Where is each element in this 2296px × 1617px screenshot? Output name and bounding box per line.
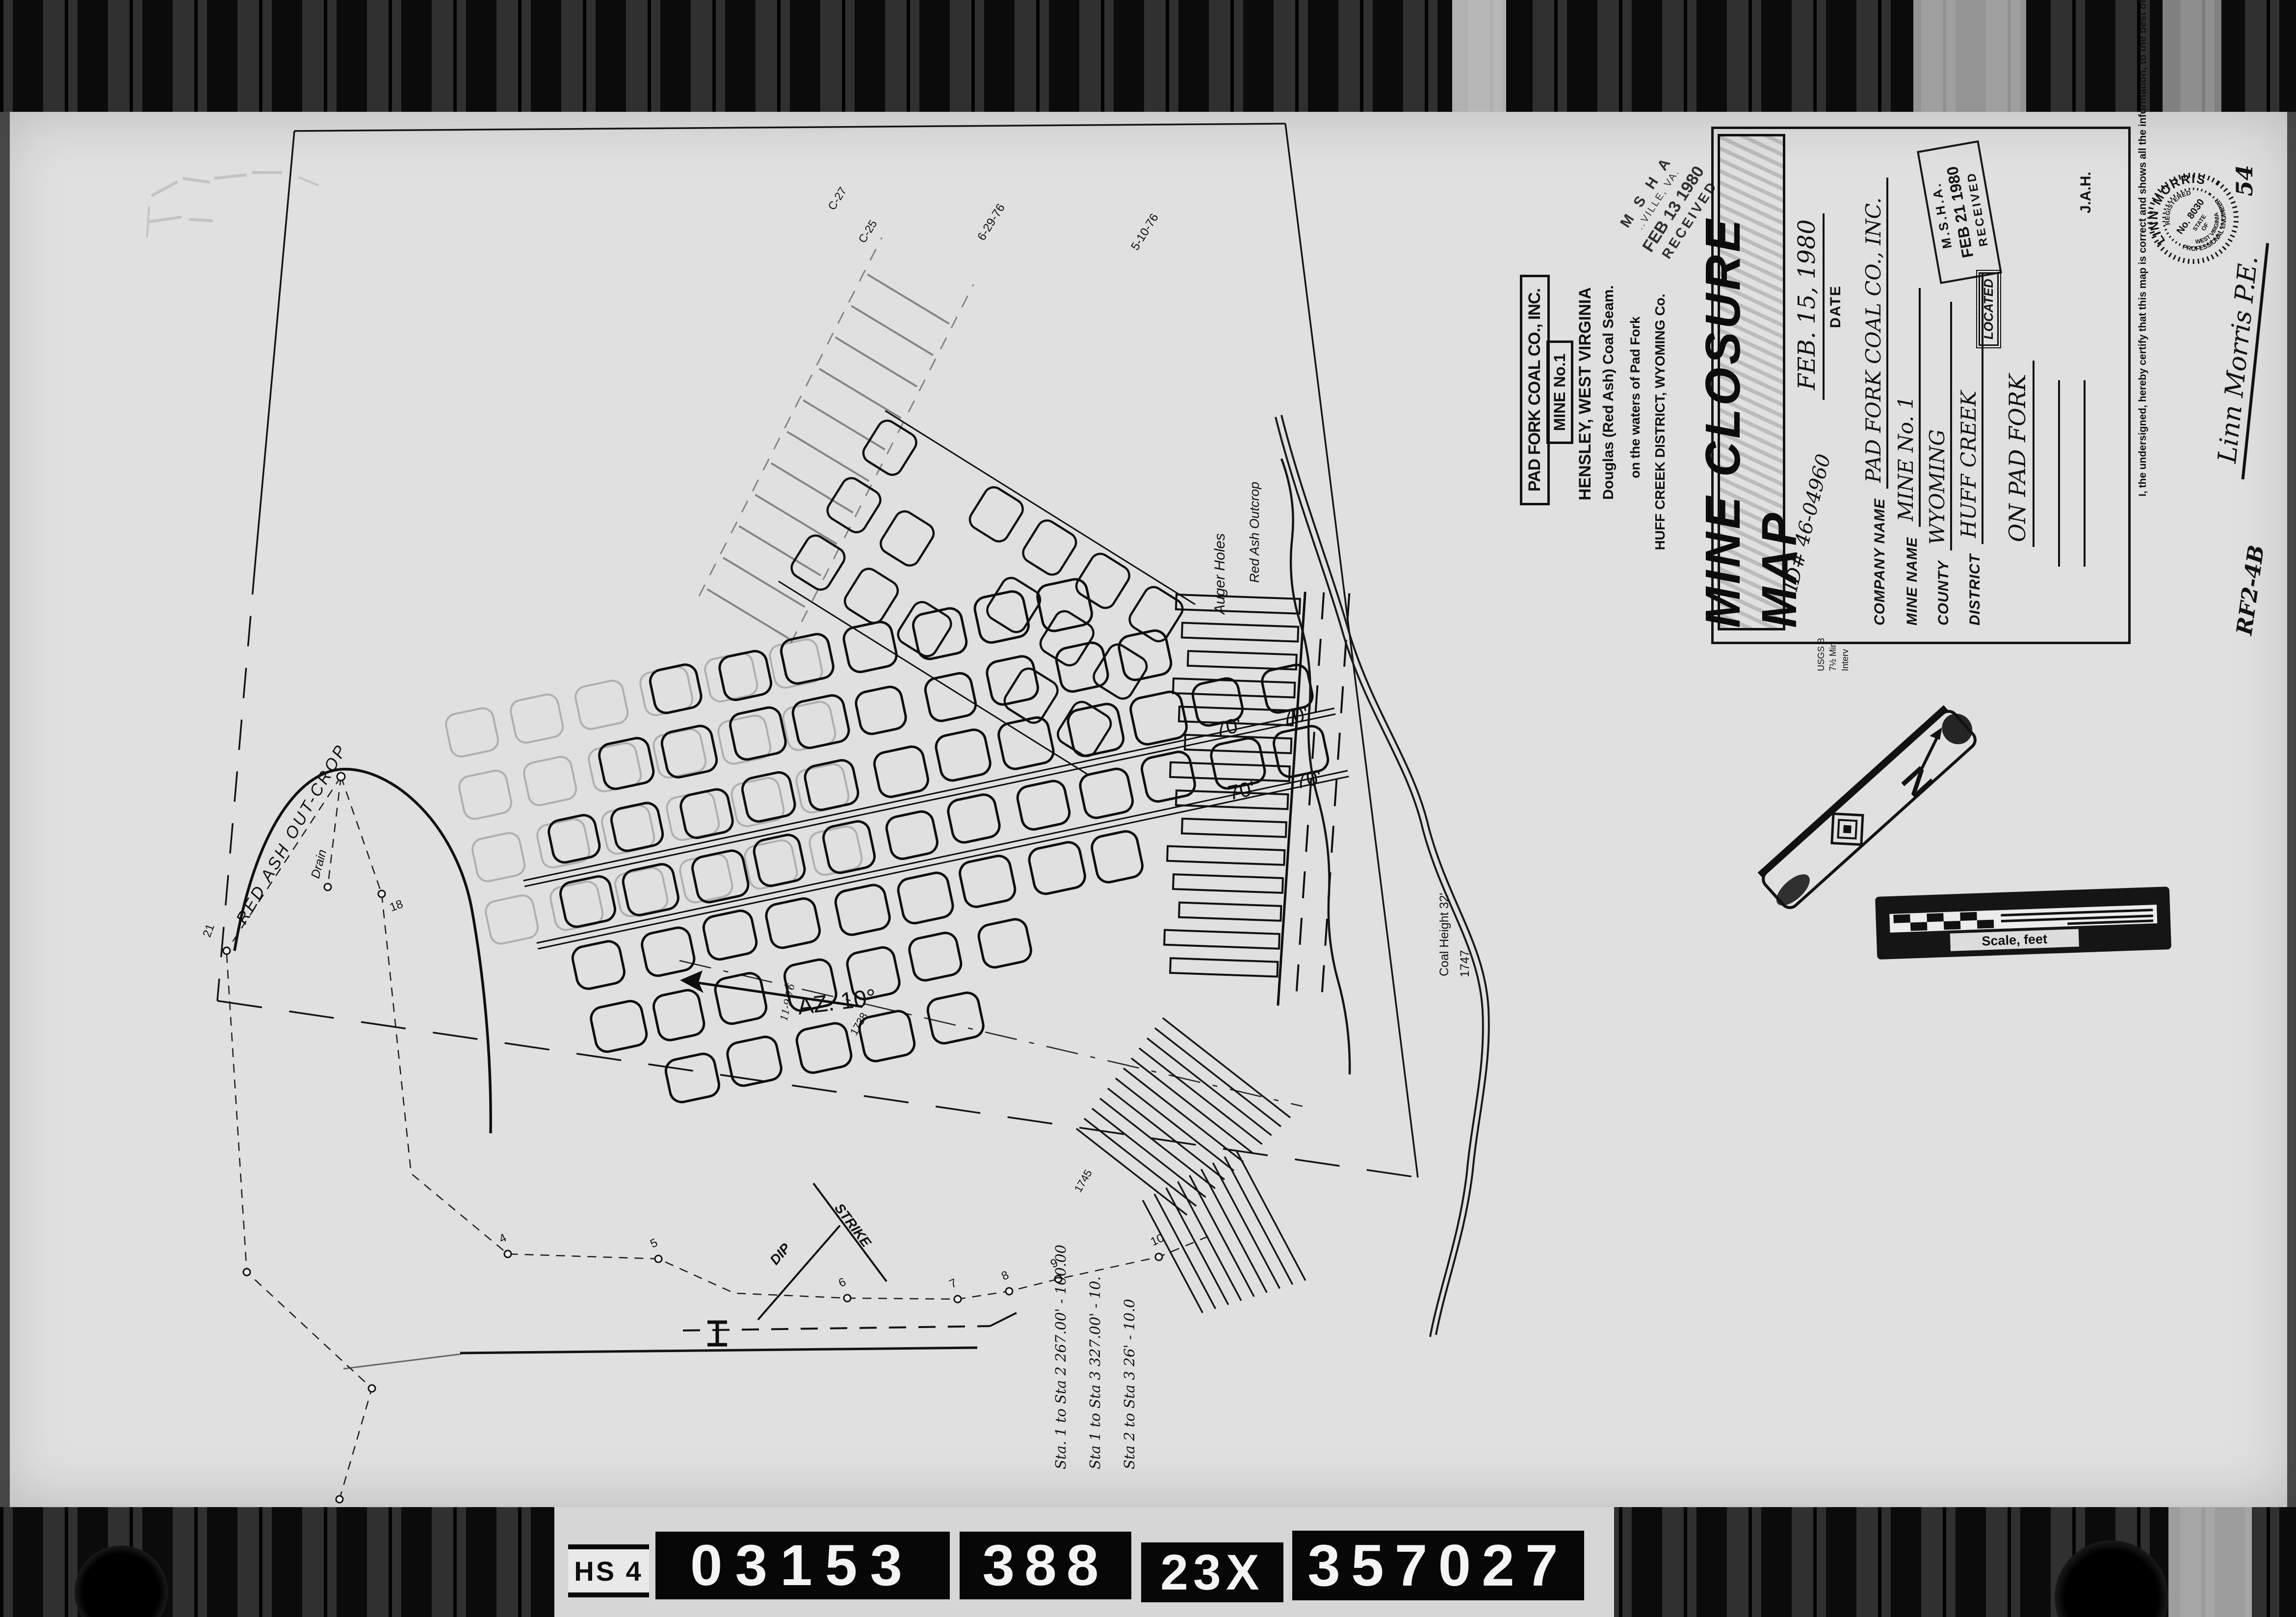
blank-line — [2064, 380, 2086, 567]
field-company: COMPANY NAME PAD FORK COAL CO., INC. — [1863, 135, 1888, 626]
survey-stations — [223, 773, 1162, 1503]
usgs-line: 7½ Min — [1827, 612, 1839, 671]
station-note: Sta. 1 to Sta 2 267.00' - 100.00 — [1052, 1245, 1069, 1469]
initials: J.A.H. — [2078, 150, 2094, 213]
field-label: COUNTY — [1935, 560, 1952, 626]
strip-fan-lower — [1143, 1150, 1305, 1330]
outcrop-loop — [235, 769, 491, 1133]
film-gap — [2168, 1507, 2252, 1617]
dip-label: DIP — [767, 1240, 793, 1268]
station-number: 4 — [497, 1231, 509, 1246]
strip-fan-upper — [1076, 1018, 1290, 1228]
field-label: DISTRICT — [1967, 554, 1983, 626]
station-number: 6 — [836, 1275, 848, 1290]
station-number-labels: 4 5 6 7 8 9 10 18 21 — [200, 897, 1166, 1291]
room-and-pillar-workings: 70' 70' 70' 70' — [486, 531, 1386, 1125]
scale-bar: Scale, feet — [1875, 887, 2171, 960]
road-lines — [343, 1313, 1017, 1369]
pillar-width-label: 70' — [1293, 765, 1324, 793]
survey-date: 6-29-76 — [975, 202, 1008, 243]
field-value: MINE No. 1 — [1895, 288, 1921, 527]
faded-stamp-marks — [136, 149, 321, 237]
station-number: 7 — [947, 1276, 959, 1291]
field-label: COMPANY NAME — [1872, 498, 1888, 626]
hs-label-plate: HS 4 — [568, 1544, 649, 1597]
seal-profession: PROFESSIONAL ENGINEER — [2180, 196, 2240, 265]
svg-text:PROFESSIONAL ENGINEER: PROFESSIONAL ENGINEER — [2180, 196, 2240, 265]
coal-height-label: Coal Height 32' — [1437, 893, 1451, 976]
msha-stamp-box: M.S.H.A. FEB 21 1980 RECEIVED — [1917, 140, 2002, 284]
outcrop-label-2: Red Ash Outcrop — [1247, 482, 1262, 583]
title-block: MINE CLOSURE MAP FEB. 15, 1980 DATE ID# … — [1711, 127, 2131, 644]
survey-date: 5-10-76 — [1128, 211, 1161, 253]
field-value: WYOMING — [1927, 302, 1952, 550]
drain-label: Drain — [309, 848, 330, 880]
azimuth-date: 11-9-76 — [778, 982, 797, 1022]
field-mine-name: MINE NAME MINE No. 1 — [1895, 184, 1921, 626]
waters-note: on the waters of Pad Fork — [1628, 304, 1643, 491]
station-number: 8 — [999, 1268, 1011, 1283]
date-value: FEB. 15, 1980 — [1793, 213, 1825, 400]
station-number: 21 — [200, 922, 217, 939]
company-location: HENSLEY, WEST VIRGINIA — [1576, 289, 1595, 500]
msha-received-stamp-title: M.S.H.A. FEB 21 1980 RECEIVED — [1928, 145, 1991, 280]
located-box: LOCATED — [1979, 272, 1999, 346]
elevation-label: 1745 — [1072, 1168, 1095, 1195]
coal-seam: Douglas (Red Ash) Coal Seam. — [1600, 285, 1617, 500]
microfilm-frame: 70' 70' 70' 70' — [0, 0, 2296, 1617]
located-label: LOCATED — [1979, 272, 1999, 346]
frame-number-plate: 388 — [960, 1532, 1131, 1599]
station-number: 18 — [388, 897, 405, 914]
elevation-label: C-27 — [825, 185, 849, 212]
elevation-label: 1738 — [848, 1011, 870, 1038]
frame-number-plate: 357027 — [1292, 1531, 1584, 1600]
ref-code-wrap: RF2-4B — [2238, 527, 2263, 635]
page-number: 54 — [2231, 147, 2258, 196]
elevation-label: C-25 — [856, 218, 879, 245]
elevation-label: 1747 — [1458, 950, 1472, 977]
id-note-wrap: ID# 46-04960 — [1796, 436, 1819, 593]
company-name-box: PAD FORK COAL CO., INC. — [1520, 275, 1550, 505]
date-row: FEB. 15, 1980 DATE — [1793, 213, 1844, 400]
centerline-dashdot — [679, 961, 1303, 1106]
blank-line — [2038, 380, 2060, 567]
usgs-line: Interv — [1839, 612, 1851, 671]
strike-label: STRIKE — [832, 1200, 874, 1251]
station-note: Sta 2 to Sta 3 26' - 10.0 — [1121, 1299, 1138, 1469]
station-note: Sta 1 to Sta 3 327.00' - 10. — [1087, 1276, 1103, 1469]
auger-holes-label: Auger Holes — [1212, 533, 1228, 615]
station-number: 10 — [1148, 1231, 1166, 1249]
field-value: PAD FORK COAL CO., INC. — [1863, 178, 1888, 488]
outcrop-label: RED ASH OUT-CROP — [233, 740, 351, 927]
station-number: 5 — [648, 1236, 660, 1251]
north-arrow: N — [1755, 702, 1985, 916]
map-title: MINE CLOSURE MAP — [1718, 134, 1785, 630]
field-label: MINE NAME — [1904, 537, 1921, 626]
benchmark-symbol — [707, 1322, 727, 1345]
north-letter: N — [1894, 759, 1941, 806]
frame-number-plate: 03153 — [655, 1532, 950, 1599]
certification-text: I, the undersigned, hereby certify that … — [2135, 286, 2151, 496]
scale-bar-label: Scale, feet — [1982, 932, 2048, 949]
located-value: ON PAD FORK — [2004, 361, 2035, 547]
mine-number-box: MINE No.1 — [1546, 340, 1573, 444]
date-label: DATE — [1827, 213, 1844, 400]
usgs-note: USGS B 7½ Min Interv — [1815, 612, 1851, 671]
usgs-line: USGS B — [1815, 612, 1827, 671]
signature-wrap: Linn Morris P.E. — [2223, 292, 2257, 478]
district-line: HUFF CREEK DISTRICT, WYOMING Co. — [1652, 285, 1668, 559]
stream — [1276, 415, 1489, 1337]
frame-number-plate: 23X — [1141, 1542, 1283, 1602]
